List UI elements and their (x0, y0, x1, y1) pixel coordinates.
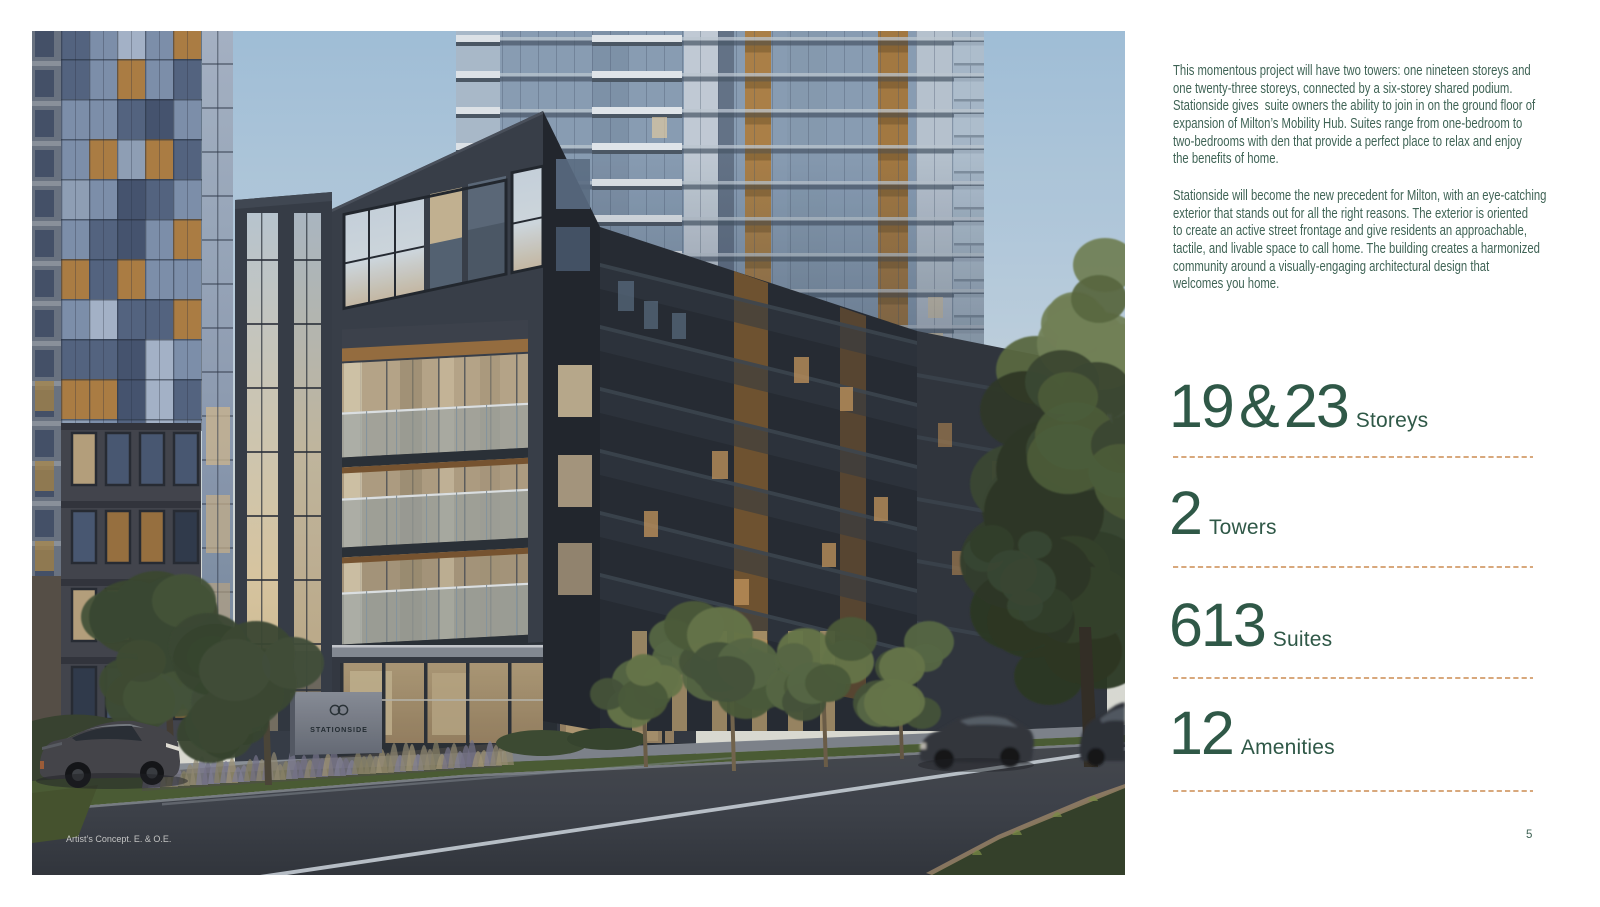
svg-text:Artist’s Concept. E. & O.E.: Artist’s Concept. E. & O.E. (66, 834, 171, 844)
